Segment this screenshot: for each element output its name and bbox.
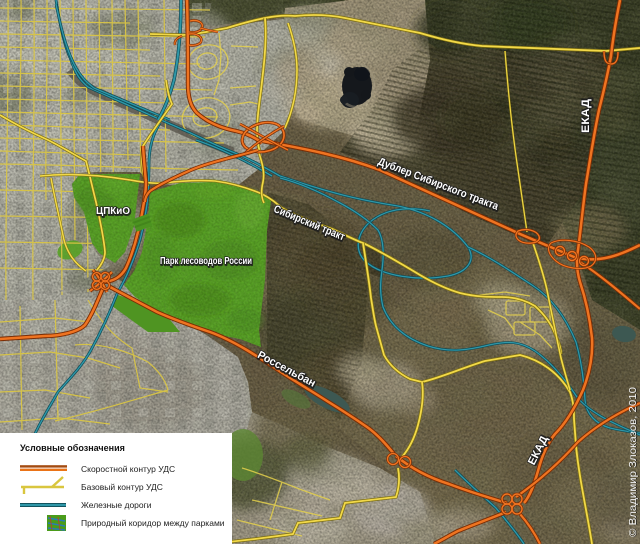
svg-text:© Владимир Злоказов, 2010: © Владимир Злоказов, 2010: [627, 387, 639, 537]
svg-text:Базовый контур УДС: Базовый контур УДС: [81, 482, 163, 492]
svg-text:Условные обозначения: Условные обозначения: [20, 443, 125, 453]
svg-text:Парк лесоводов России: Парк лесоводов России: [160, 256, 252, 267]
svg-text:Железные дороги: Железные дороги: [81, 500, 152, 510]
svg-text:Скоростной контур УДС: Скоростной контур УДС: [81, 464, 175, 474]
svg-text:ЕКАД: ЕКАД: [580, 99, 592, 133]
svg-text:ЦПКиО: ЦПКиО: [96, 206, 130, 217]
svg-text:Природный коридор между паркам: Природный коридор между парками: [81, 518, 225, 528]
